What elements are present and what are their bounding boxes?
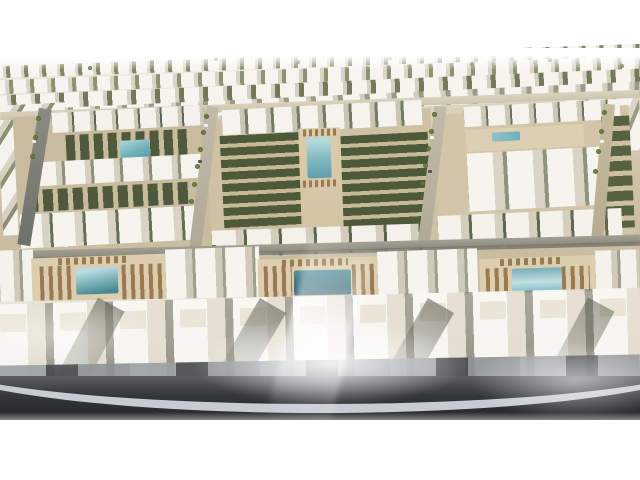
apartments-front-left-edge [0,249,35,314]
car [204,124,208,127]
palm-tree [214,57,218,61]
loungers [39,265,74,300]
palm-tree [420,181,425,186]
layer-base [0,0,640,480]
distant-villa-row [0,44,640,79]
right-block-green-edge [601,115,635,228]
car [600,140,604,143]
distant-villa-row [0,68,640,110]
palm-tree [593,169,598,174]
palm-tree [602,110,607,115]
palm-tree [192,182,197,187]
palm-tree [432,112,437,117]
left-block-garden-rows [28,182,191,212]
pavement-upper [0,354,640,391]
pool-deck-middle [257,256,380,305]
palm-tree [423,163,428,168]
left-block-top-apartments [52,105,205,133]
palm-tree [426,146,431,151]
right-block-townhouses [437,208,622,244]
building-shadow-streak [204,298,286,410]
central-pool-loungers-top [303,128,337,136]
right-block-pool [492,131,520,141]
right-block-plaza [466,124,585,152]
palm-tree [33,135,38,140]
central-courtyard [298,127,344,232]
central-block-top-apartments [221,100,422,135]
aerial-render [0,0,640,480]
car [212,245,216,248]
car [502,245,506,248]
central-pool-loungers-bottom [303,179,337,187]
palm-tree [599,129,604,134]
layer-pool-decks [0,0,640,480]
pool-deck-right [479,255,597,311]
right-block-top-apartments [464,99,621,127]
curb-arc [0,298,640,413]
palm-tree [620,64,624,68]
central-garden-rows-left [220,132,305,230]
mist-patch [180,315,480,410]
central-pool [306,137,331,179]
palm-tree [150,60,154,64]
pool-right [511,267,562,300]
bottom-white-mask [0,420,640,480]
building-shadow-streak [372,298,454,410]
layer-front-street [0,0,640,480]
pool-left [76,266,119,294]
palm-tree [470,62,474,66]
central-block-townhouses [212,223,431,258]
palm-tree [198,147,203,152]
layer-streets [0,0,640,480]
left-block-garden-rows [65,129,190,161]
page [0,0,640,480]
top-white-fade [0,48,640,70]
right-block-ground [433,105,635,243]
apartments-front-gap [377,248,479,313]
villas-right-patch [564,90,640,154]
apartments-front-gap [165,246,261,313]
street-central-right [417,106,446,248]
car [430,136,434,139]
distant-villa-row [0,55,640,94]
foreground-buildings-base [0,290,640,401]
central-garden-rows-right [336,132,433,231]
street-left-edge [17,108,51,246]
front-street-shadow [0,242,640,263]
loungers [282,258,348,267]
loungers [352,264,379,297]
ground-base [0,52,640,422]
palm-tree [548,58,552,62]
palm-tree [195,164,200,169]
villas-left-patch [0,102,71,235]
palm-tree [201,130,206,135]
layer-cars [0,0,640,480]
layer-mid-blocks [0,0,640,480]
right-block-cluster [467,146,608,211]
left-block-ground [13,107,212,249]
loungers [561,266,590,301]
layer-distant-villas [0,0,640,480]
palm-tree [88,66,92,70]
foreground-roof-patios [0,298,640,333]
apartments-front-right-edge [595,249,640,312]
street-left-central [189,106,218,248]
loungers [121,263,164,300]
building-shadow-streak [45,298,124,411]
layer-palms [0,0,640,480]
layer-foreground-buildings [0,0,640,480]
palm-tree [429,129,434,134]
mist-streak [265,230,374,435]
palm-tree [596,149,601,154]
street-right-edge [591,104,615,245]
foreground-building-blocks [0,287,640,404]
upper-cross-road [0,90,640,120]
mist-patch [0,300,160,370]
left-block-pool [119,139,150,162]
palm-tree [189,199,194,204]
loungers [500,257,562,266]
layer-atmosphere [0,0,640,480]
pool-middle [294,270,351,296]
loungers [264,266,293,299]
main-road-dark [0,376,640,422]
palm-tree [36,116,41,121]
car [198,160,202,163]
pool-deck-left [31,254,167,311]
layer-bottom-road [0,0,640,480]
car [356,243,360,246]
palm-tree [204,114,209,119]
left-block-villas-row [19,205,203,248]
palm-tree [296,60,300,64]
palm-tree [388,56,392,60]
car [64,244,68,247]
car [428,170,432,173]
loungers [485,268,512,301]
distant-villa-row [0,81,640,126]
left-block-mid-apartments [35,154,202,187]
bottom-edge-fade [0,412,640,422]
palm-tree [30,154,35,159]
central-block-ground [207,108,438,252]
mist-patch [470,340,640,420]
car [32,140,36,143]
loungers [58,256,128,265]
building-shadow-streak [535,298,614,411]
front-street [0,235,640,260]
